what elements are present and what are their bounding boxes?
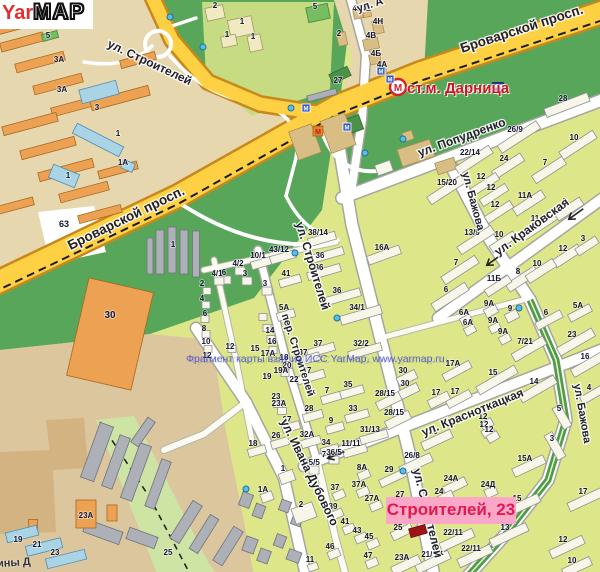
- building-number: 34/1: [349, 303, 365, 312]
- building-number: 7: [454, 258, 459, 267]
- building-number: 45: [365, 532, 374, 541]
- building-number: 15/20: [437, 178, 458, 187]
- building-number: 3: [95, 103, 100, 112]
- building-number: 21: [33, 540, 42, 549]
- building-number: 2: [337, 29, 342, 38]
- building-number: 28/15: [384, 408, 405, 417]
- building-number: 37: [314, 339, 323, 348]
- building-number: 25: [164, 548, 173, 557]
- yarmap-logo: YarMAP: [0, 0, 93, 29]
- building-number: 15: [251, 344, 260, 353]
- building-number: 7: [543, 158, 548, 167]
- building-number: 11: [306, 555, 315, 564]
- building: [214, 277, 224, 285]
- building-number: 1А: [258, 485, 268, 494]
- building-number: 37: [331, 483, 340, 492]
- building-number: 23: [51, 548, 60, 557]
- traffic-signal-icon: [200, 44, 206, 50]
- building-number: 4: [587, 383, 592, 392]
- building: [278, 408, 287, 415]
- building-number: 10: [533, 259, 542, 268]
- metro-station-label: ст.м. Дарница: [407, 80, 509, 97]
- building-number: 13: [501, 523, 510, 532]
- building-number: 6А: [459, 308, 469, 317]
- map-zone: [0, 450, 56, 534]
- building-number: 32/2: [353, 339, 369, 348]
- building-number: 4/1: [211, 269, 223, 278]
- building-number: 28: [559, 94, 568, 103]
- building: [107, 505, 117, 521]
- building-number: 10: [570, 133, 579, 142]
- building-number: 6: [203, 309, 208, 318]
- building-number: 17А: [446, 359, 461, 368]
- address-highlight-badge: Строителей, 23: [386, 497, 516, 524]
- building-number: 3: [243, 269, 248, 278]
- building-number: 3А: [54, 55, 64, 64]
- building-number: 9: [508, 304, 513, 313]
- street-label-fragment: ины Д: [0, 556, 31, 570]
- map-canvas[interactable]: ММММММ53А3А311А16313023А192123252111524Г…: [0, 0, 600, 572]
- metro-entrance-icon: М: [379, 69, 384, 75]
- building-number: 2: [200, 279, 205, 288]
- building-number: 10/1: [250, 251, 266, 260]
- building-number: 23А: [395, 553, 410, 562]
- building-number: 8: [202, 324, 207, 333]
- watermark-text: Фрагмент карты взят из ИСС YarMap, www.y…: [186, 353, 445, 365]
- building-number: 2: [299, 500, 304, 509]
- metro-entrance-icon: М: [345, 125, 350, 131]
- traffic-signal-icon: [288, 105, 294, 111]
- building-number: 17: [579, 487, 588, 496]
- building-number: 26/9: [507, 125, 523, 134]
- building-number: 32А: [300, 430, 315, 439]
- building-number: 12: [559, 244, 568, 253]
- building-number: 17: [432, 388, 441, 397]
- traffic-signal-icon: [516, 305, 522, 311]
- building-number: 5: [46, 31, 51, 40]
- building-number: 6: [544, 308, 549, 317]
- building-number: 4В: [366, 31, 376, 40]
- building-number: 6: [444, 285, 449, 294]
- building-number: 22/14: [460, 148, 481, 157]
- building-number: 5: [313, 2, 318, 11]
- building-number: 1: [66, 171, 71, 180]
- building: [242, 277, 252, 285]
- building-number: 4: [200, 294, 205, 303]
- building-number: 18: [249, 439, 258, 448]
- building-number: 12: [487, 183, 496, 192]
- building-number: 4Н: [373, 17, 383, 26]
- metro-entrance-icon: М: [304, 106, 309, 112]
- building-number: 4Б: [371, 49, 381, 58]
- building-number: 31/13: [360, 425, 381, 434]
- building-number: 5А: [573, 301, 583, 310]
- building-number: 26/8: [404, 451, 420, 460]
- building-number: 19А: [274, 366, 289, 375]
- building-number: 23: [568, 330, 577, 339]
- building-number: 9А: [488, 316, 498, 325]
- building-number: 30: [401, 379, 410, 388]
- building-number: 46: [326, 542, 335, 551]
- building: [147, 238, 153, 274]
- building-number: 63: [59, 219, 69, 229]
- building: [193, 231, 200, 277]
- building-number: 5А: [279, 303, 289, 312]
- building: [156, 230, 164, 274]
- building: [262, 287, 272, 295]
- building-number: 15А: [518, 454, 533, 463]
- building-number: 10: [495, 230, 504, 239]
- building-number: 34: [322, 438, 331, 447]
- map-zone: [46, 418, 88, 470]
- building-number: 11Б: [487, 274, 501, 283]
- building-number: 10: [202, 337, 211, 346]
- metro-station-icon: М: [394, 83, 402, 94]
- building-number: 12: [485, 425, 494, 434]
- building-number: 6А: [463, 318, 473, 327]
- building: [180, 230, 188, 274]
- building-number: 37А: [352, 480, 367, 489]
- building-number: 1: [116, 129, 121, 138]
- building-number: 1: [225, 30, 230, 39]
- building-number: 35: [344, 380, 353, 389]
- building-number: 1А: [118, 158, 128, 167]
- building-number: 5: [557, 404, 562, 413]
- building-number: 12: [559, 535, 568, 544]
- building-number: 36: [333, 286, 342, 295]
- building-number: 33: [349, 404, 358, 413]
- building-number: 22/11: [443, 528, 463, 537]
- building-number: 7/21: [517, 337, 533, 346]
- building-number: 19: [263, 372, 272, 381]
- building-number: 30: [104, 310, 116, 321]
- building-number: 22/11: [461, 544, 481, 553]
- logo-map: MAP: [33, 0, 85, 24]
- building-number: 43/12: [269, 245, 290, 254]
- building-number: 28/15: [375, 389, 396, 398]
- building-number: 3: [581, 234, 586, 243]
- traffic-signal-icon: [243, 486, 249, 492]
- traffic-signal-icon: [400, 468, 406, 474]
- building-number: 24А: [444, 474, 459, 483]
- traffic-signal-icon: [400, 136, 406, 142]
- traffic-signal-icon: [292, 250, 298, 256]
- building-number: 29: [385, 465, 394, 474]
- traffic-signal-icon: [362, 150, 368, 156]
- building-number: 23А: [272, 399, 287, 408]
- building-number: 9А: [484, 299, 494, 308]
- building-number: 9: [329, 416, 334, 425]
- building-number: 23А: [79, 511, 94, 520]
- traffic-signal-icon: [167, 14, 173, 20]
- building-number: 2: [213, 1, 218, 10]
- building-number: 1: [171, 240, 176, 249]
- building-number: 36/5: [326, 448, 342, 457]
- building-number: 24Д: [481, 480, 496, 489]
- building-number: 24: [500, 154, 509, 163]
- building-number: 27А: [365, 494, 380, 503]
- building-number: 7: [325, 386, 330, 395]
- traffic-signal-icon: [334, 315, 340, 321]
- building-number: 9А: [498, 327, 508, 336]
- building-number: 16: [581, 352, 590, 361]
- building-number: 3: [550, 434, 555, 443]
- building-number: 16: [268, 337, 277, 346]
- building: [259, 314, 267, 321]
- building-number: 11А: [518, 191, 532, 200]
- building-number: 22: [290, 375, 299, 384]
- building-number: 28: [305, 404, 314, 413]
- building-number: 16А: [375, 243, 390, 252]
- metro-entrance-icon: М: [315, 129, 321, 136]
- building-number: 26: [272, 431, 281, 440]
- building-number: 4А: [377, 60, 387, 69]
- building-number: 1: [281, 464, 286, 473]
- building-number: 10: [568, 556, 577, 565]
- building-number: 1: [251, 32, 256, 41]
- metro-entrance-icon: М: [388, 77, 393, 83]
- building-number: 3: [263, 279, 268, 288]
- building-number: 14: [266, 326, 275, 335]
- building-number: 12: [491, 200, 500, 209]
- map-fragment: ММММММ53А3А311А16313023А192123252111524Г…: [0, 0, 600, 572]
- building-number: 1: [240, 17, 245, 26]
- building-number: 19: [14, 535, 23, 544]
- building-number: 24: [435, 487, 444, 496]
- building-number: 41: [282, 269, 291, 278]
- building-number: 4/2: [232, 259, 244, 268]
- building-number: 14: [530, 377, 539, 386]
- building-number: 15: [489, 368, 498, 377]
- building-number: 47: [364, 551, 373, 560]
- logo-yar: Yar: [2, 2, 33, 24]
- building-number: 12: [226, 342, 235, 351]
- building-number: 3А: [57, 85, 67, 94]
- building-number: 30: [399, 366, 408, 375]
- building-number: 11/11: [341, 439, 361, 448]
- building-number: 8А: [357, 463, 367, 472]
- building: [168, 227, 176, 273]
- building-number: 17: [451, 387, 460, 396]
- building-number: 43: [353, 526, 362, 535]
- building-number: 8: [516, 267, 521, 276]
- building-number: 12: [477, 172, 486, 181]
- building-number: 27: [334, 76, 343, 85]
- building-number: 25: [394, 523, 403, 532]
